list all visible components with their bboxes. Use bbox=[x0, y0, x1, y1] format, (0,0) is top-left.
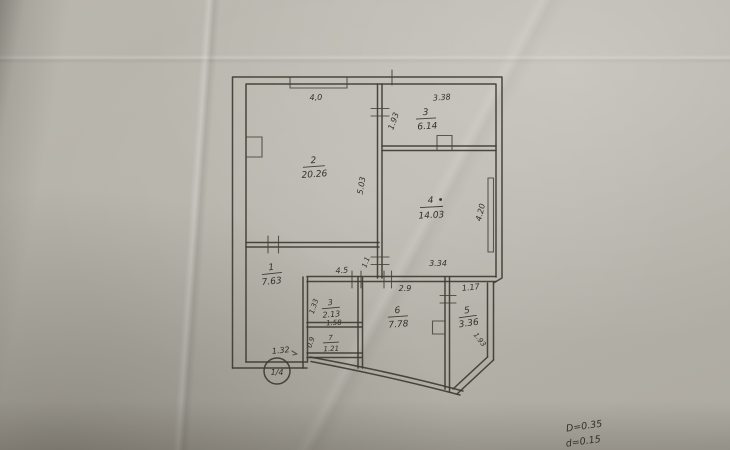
fraction-line bbox=[416, 118, 436, 119]
dim-door-width: 1.1 bbox=[360, 256, 371, 269]
curved-outer-wall bbox=[310, 357, 463, 395]
room3-top-area: 6.14 bbox=[417, 121, 438, 132]
room6-area: 7.78 bbox=[388, 319, 409, 330]
dim-room5-diag: 1.93 bbox=[472, 331, 488, 348]
door-ticks-room1 bbox=[268, 236, 279, 253]
dim-room2-top: 4,0 bbox=[309, 93, 322, 102]
room5-slanted-wall bbox=[453, 357, 494, 394]
dim-room4-bottom: 3.34 bbox=[429, 259, 447, 268]
room4-number: 4 bbox=[428, 196, 435, 206]
room6-number: 6 bbox=[394, 306, 401, 316]
room7-number: 7 bbox=[328, 334, 333, 342]
door-ticks-central-bottom bbox=[371, 257, 389, 265]
dim-room5-top: 1.17 bbox=[461, 282, 481, 293]
fraction-line bbox=[323, 342, 339, 343]
dim-room3-side: 1.93 bbox=[386, 111, 401, 131]
room3-small-number: 3 bbox=[327, 298, 333, 307]
door-ticks-room5 bbox=[440, 296, 456, 304]
note-line1: D=0.35 bbox=[565, 419, 603, 435]
note-line2: d=0.15 bbox=[565, 434, 601, 450]
dim-room3-top: 3.38 bbox=[433, 92, 451, 102]
room5-left-wall bbox=[445, 277, 450, 392]
room2-number: 2 bbox=[310, 156, 317, 166]
photo-of-floor-plan: 2 20.26 3 6.14 4 14.03 1 7.63 6 7.78 5 bbox=[0, 0, 730, 450]
entry-arrow bbox=[292, 351, 297, 355]
room5-area: 3.36 bbox=[458, 318, 480, 331]
door-ticks-corridor-b bbox=[384, 271, 392, 288]
room5-right-wall bbox=[488, 283, 494, 360]
room7-area: 1.21 bbox=[323, 345, 339, 354]
room4-dot bbox=[439, 198, 442, 201]
floor-plan-drawing: 2 20.26 3 6.14 4 14.03 1 7.63 6 7.78 5 bbox=[0, 0, 730, 450]
window-room4 bbox=[488, 178, 494, 252]
dim-room2-side: 5.03 bbox=[356, 176, 368, 195]
room4-area: 14.03 bbox=[418, 210, 445, 221]
room7-bottom-wall bbox=[307, 353, 362, 358]
central-wall bbox=[378, 84, 383, 278]
room1-room2-wall bbox=[246, 243, 379, 248]
room3-bottom-wall bbox=[382, 146, 496, 151]
vent-shaft-room6 bbox=[433, 321, 446, 334]
dim-room6-top: 2.9 bbox=[399, 284, 412, 293]
corridor-top-wall bbox=[307, 277, 496, 282]
room1-area: 7.63 bbox=[261, 276, 282, 288]
dim-room3s-width: 1.58 bbox=[326, 319, 343, 328]
room1-number: 1 bbox=[268, 263, 275, 274]
dim-entry: 1.32 bbox=[271, 345, 290, 356]
room3-top-number: 3 bbox=[423, 108, 430, 118]
dim-room4-side: 4.20 bbox=[474, 203, 487, 222]
riser-label: 1/4 bbox=[271, 368, 284, 377]
shaft-room2 bbox=[246, 137, 262, 157]
door-ticks-central-top bbox=[371, 109, 389, 117]
room5-number: 5 bbox=[463, 306, 470, 317]
fraction-line bbox=[388, 316, 408, 317]
door-ticks-corridor-a bbox=[352, 271, 361, 288]
dim-room3s-side: 1.33 bbox=[308, 298, 320, 315]
room2-area: 20.26 bbox=[301, 169, 328, 181]
dim-hall-width: 4.5 bbox=[335, 266, 348, 276]
vent-shaft-room3 bbox=[437, 136, 452, 151]
corner-notes: D=0.35 d=0.15 bbox=[563, 419, 605, 450]
fraction-line bbox=[420, 206, 443, 207]
top-ledge bbox=[290, 77, 347, 88]
room-labels: 2 20.26 3 6.14 4 14.03 1 7.63 6 7.78 5 bbox=[260, 107, 480, 353]
